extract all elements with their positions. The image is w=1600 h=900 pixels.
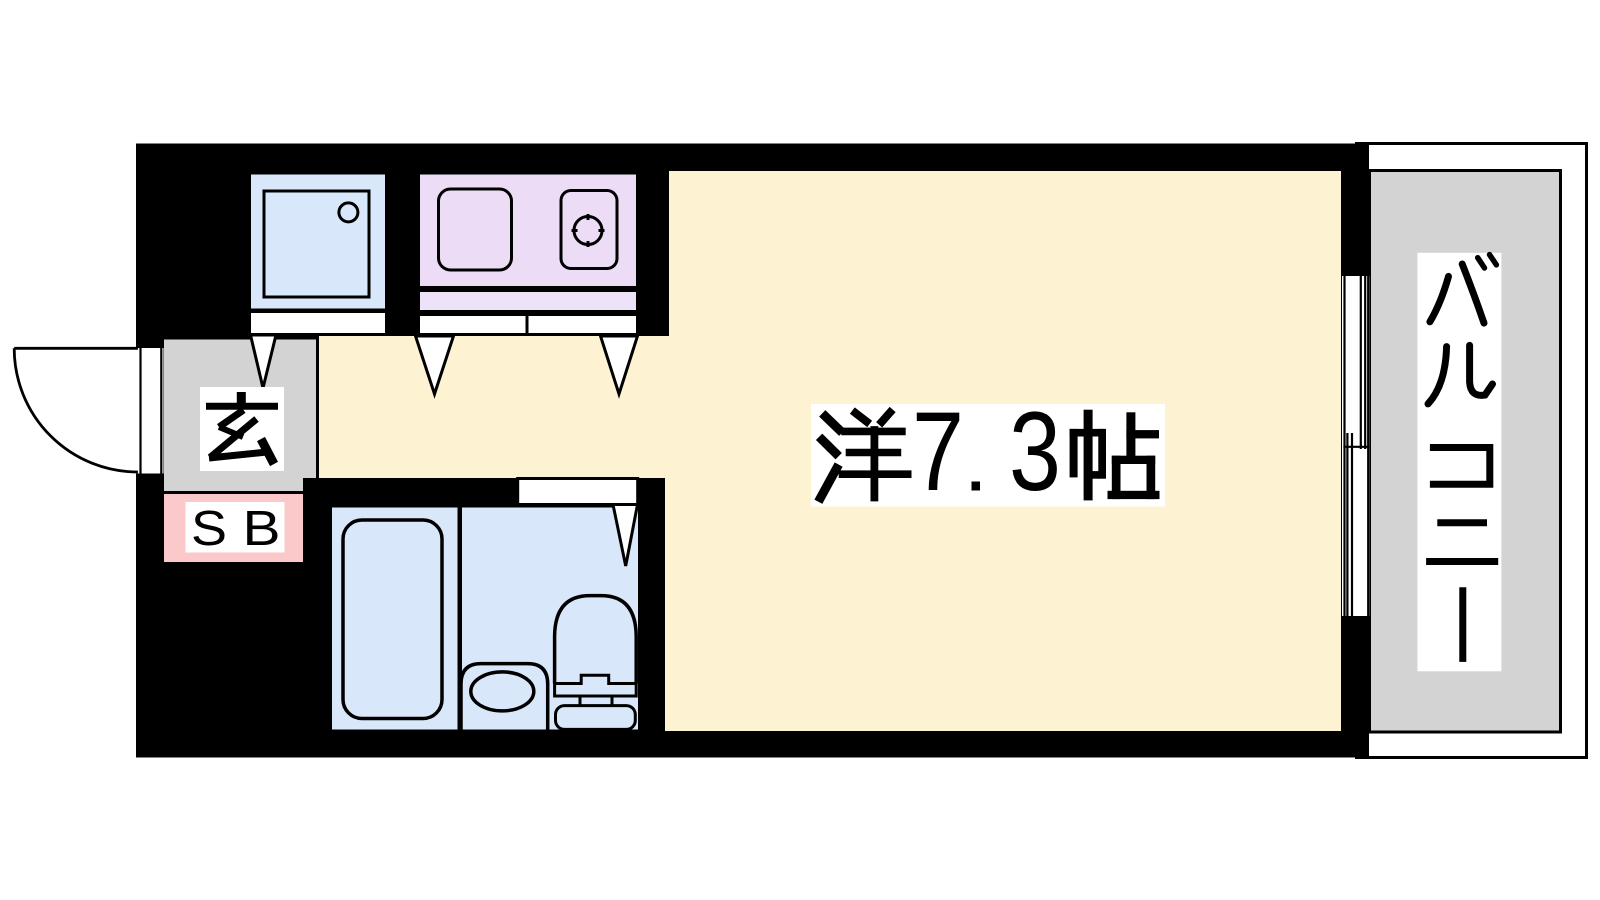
svg-text:3: 3 <box>1009 389 1061 514</box>
svg-text:S: S <box>191 502 227 556</box>
svg-text:7: 7 <box>912 389 964 514</box>
svg-text:B: B <box>243 502 281 556</box>
